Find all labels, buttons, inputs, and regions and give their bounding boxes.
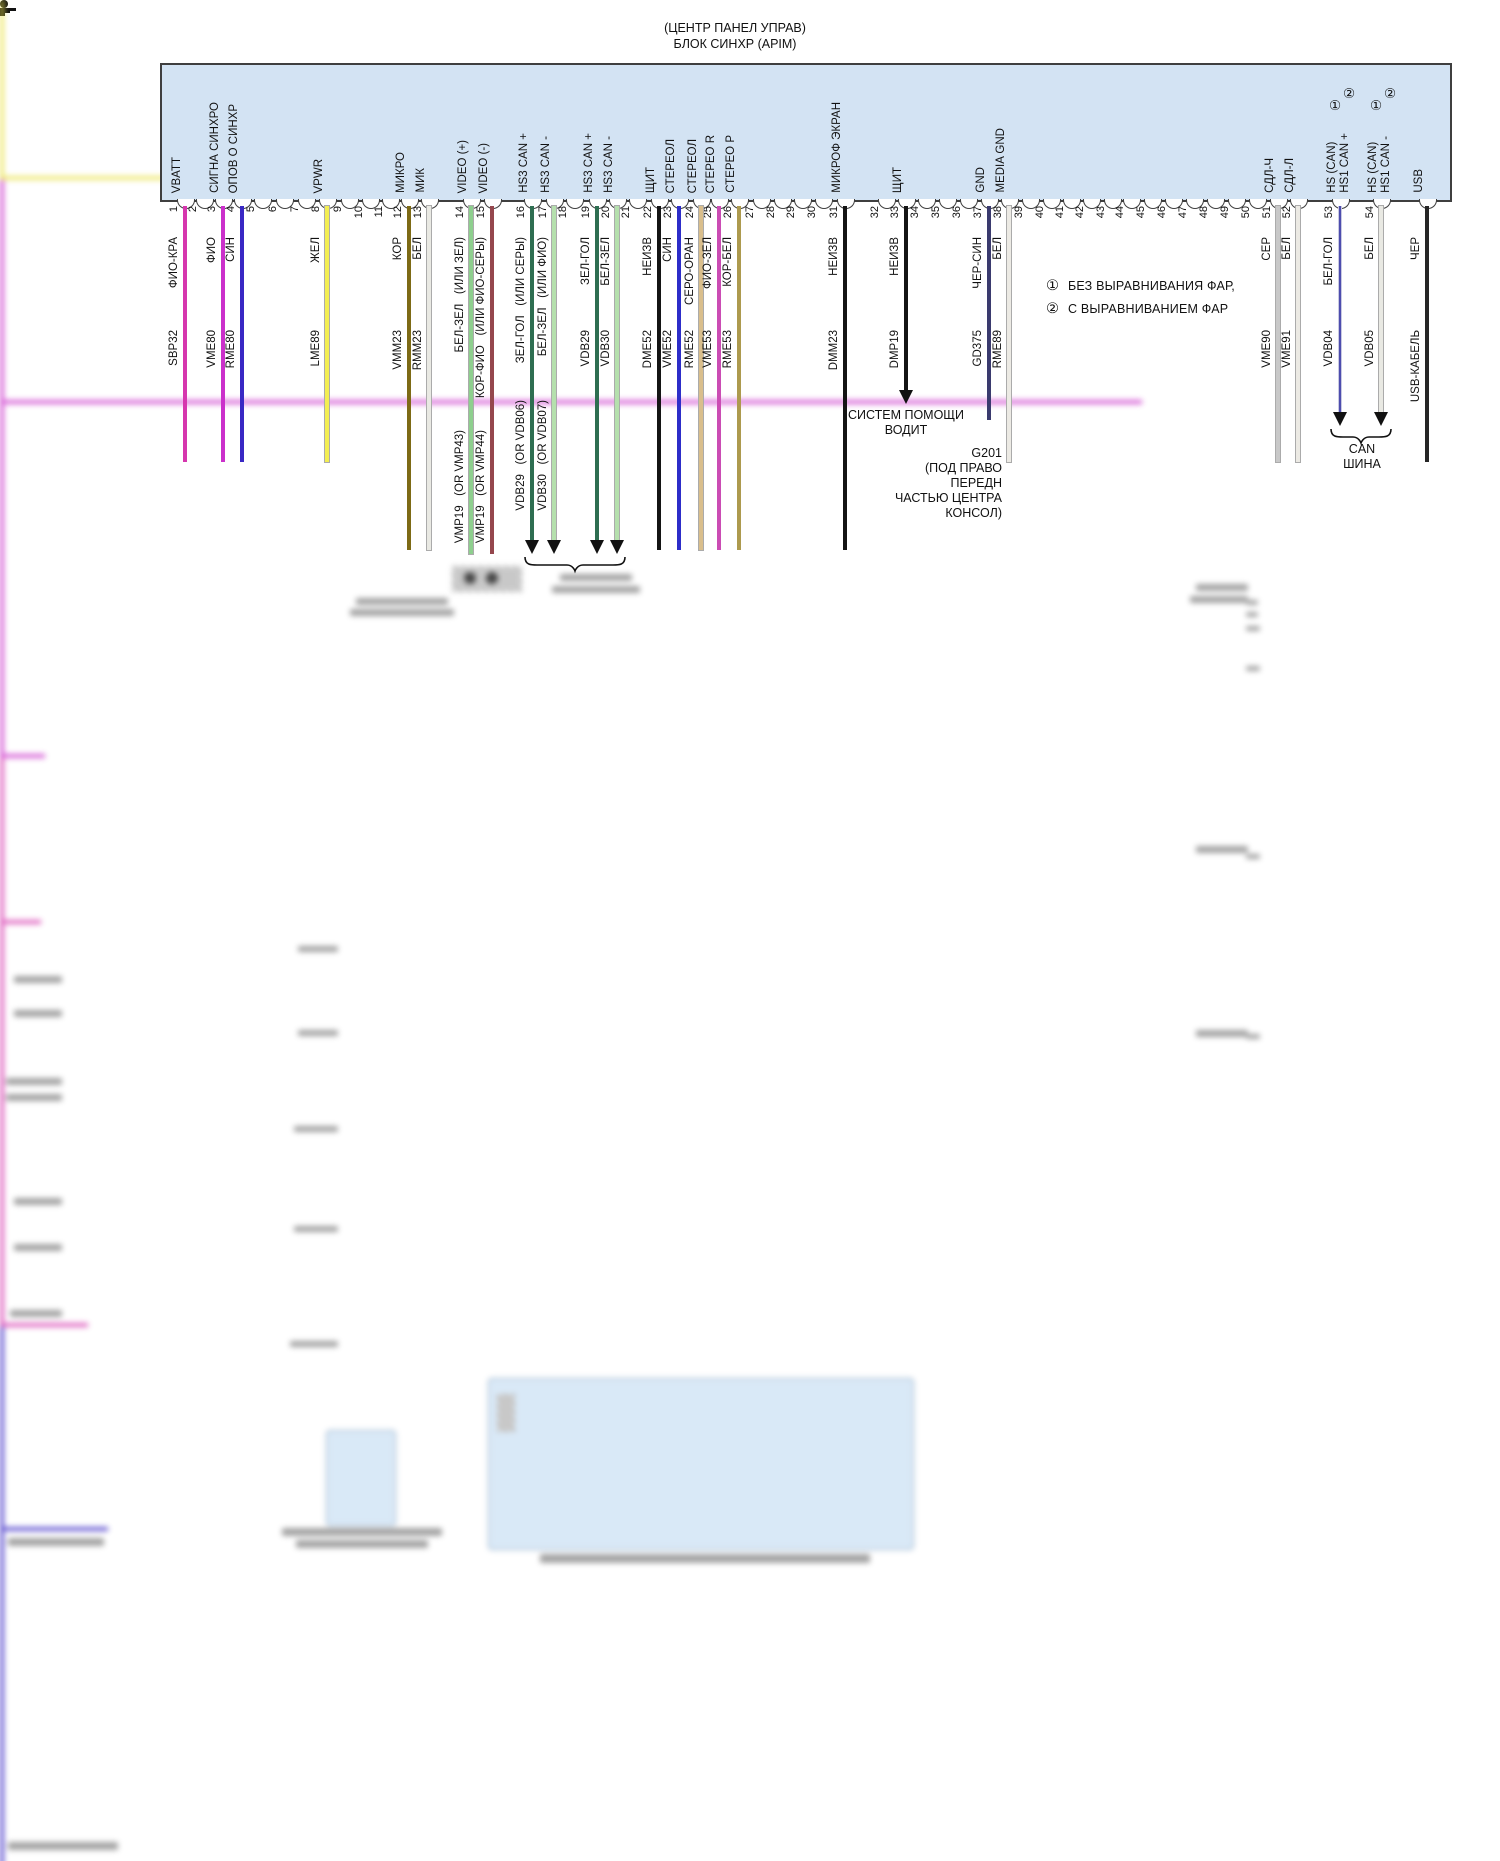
wire-segment	[407, 206, 411, 550]
pin-number: 15	[475, 206, 487, 218]
pin-number: 51	[1261, 206, 1273, 218]
circuit-code-label: LME89	[310, 330, 323, 366]
pin-number: 32	[869, 206, 881, 218]
wire-color-label: ФИО	[206, 237, 219, 263]
blurred-connector-hatch	[497, 1394, 515, 1432]
circuit-code-label: USB-КАБЕЛЬ	[1410, 330, 1423, 402]
blurred-label	[298, 946, 338, 952]
pin-number: 35	[930, 206, 942, 218]
wire-color-label: БЕЛ	[1281, 237, 1294, 260]
pin-number: 2	[187, 206, 199, 212]
blurred-wire	[0, 920, 41, 924]
wire-segment	[325, 206, 329, 462]
blurred-wire	[0, 1531, 4, 1861]
pin-function-label: VIDEO (-)	[478, 143, 491, 193]
wire-segment	[1425, 206, 1429, 462]
wire-color-label: ФИО-ЗЕЛ	[702, 237, 715, 289]
pin-number: 52	[1281, 206, 1293, 218]
blurred-label	[552, 586, 640, 593]
pin-number: 43	[1095, 206, 1107, 218]
wire-segment	[657, 206, 661, 550]
pin-function-label: ЩИТ	[645, 167, 658, 193]
pin-number: 50	[1240, 206, 1252, 218]
blurred-label	[1196, 584, 1248, 591]
pin-number: 20	[600, 206, 612, 218]
pin-function-label: HS3 CAN -	[540, 136, 553, 193]
wire-color-label: НЕИЗВ	[889, 237, 902, 276]
wire-color-label: БЕЛ-ЗЕЛ (ИЛИ ФИО)	[537, 237, 550, 356]
pin-function-label: HS3 CAN +	[583, 133, 596, 193]
wire-color-label: СИН	[662, 237, 675, 262]
pin-number: 23	[662, 206, 674, 218]
pin-number: 44	[1114, 206, 1126, 218]
blurred-wire	[0, 754, 45, 758]
circuit-code-label: VDB04	[1323, 330, 1336, 366]
blurred-component-box	[326, 1430, 396, 1526]
pin-number: 8	[310, 206, 322, 212]
wire-color-label: БЕЛ	[412, 237, 425, 260]
pin-number: 13	[412, 206, 424, 218]
blurred-label	[1246, 854, 1260, 859]
pin-number: 12	[392, 206, 404, 218]
pin-number: 9	[332, 206, 344, 212]
wire-arrow-end	[610, 540, 624, 554]
blurred-label	[296, 1540, 428, 1548]
wire-color-label: БЕЛ	[992, 237, 1005, 260]
blurred-splice-dot	[486, 572, 498, 584]
wire-color-label: ЧЁР-СИН	[972, 237, 985, 289]
pin-number: 48	[1198, 206, 1210, 218]
wire-color-label: СИН	[225, 237, 238, 262]
blurred-label	[350, 609, 454, 616]
wire-segment	[490, 206, 494, 554]
pin-number: 17	[537, 206, 549, 218]
blurred-label	[1246, 600, 1258, 605]
wire-color-label: ЧЁР	[1410, 237, 1423, 260]
pin-number: 18	[557, 206, 569, 218]
headlamp-variant-mark: ②	[1343, 87, 1355, 101]
pin-function-label: HS (CAN)HS1 CAN -	[1367, 136, 1393, 193]
headlamp-variant-mark: ①	[1329, 99, 1341, 113]
circuit-code-label: VME80	[206, 330, 219, 368]
wire-arrow-end	[1374, 412, 1388, 426]
wire-segment	[1276, 206, 1280, 462]
blurred-label	[1246, 666, 1260, 671]
legend-row: ②С ВЫРАВНИВАНИЕМ ФАР	[1046, 297, 1235, 320]
blurred-label	[356, 598, 448, 605]
blurred-label	[290, 1341, 338, 1347]
blurred-lower-section	[0, 0, 1500, 1861]
pin-function-label: СИГНА СИНХРО	[209, 102, 222, 193]
circuit-code-label: VMM23	[392, 330, 405, 370]
wiring-diagram: (ЦЕНТР ПАНЕЛ УПРАВ) БЛОК СИНХР (APIM) VB…	[0, 0, 1500, 1861]
blurred-wire	[0, 400, 1142, 404]
pin-function-label: СДЛ-Л	[1284, 158, 1297, 193]
circuit-code-label: VME90	[1261, 330, 1274, 368]
blurred-label	[1246, 1034, 1260, 1039]
wire-segment	[595, 206, 599, 540]
pin-function-label: МИК	[415, 168, 428, 193]
legend-variant-mark: ①	[1046, 278, 1059, 294]
pin-number: 24	[684, 206, 696, 218]
wire-segment	[677, 206, 681, 550]
blurred-label	[1246, 626, 1260, 631]
blurred-label	[1246, 612, 1258, 617]
circuit-code-label: RME53	[722, 330, 735, 368]
pin-number: 45	[1135, 206, 1147, 218]
wire-color-label: НЕИЗВ	[642, 237, 655, 276]
connector-title: (ЦЕНТР ПАНЕЛ УПРАВ) БЛОК СИНХР (APIM)	[535, 20, 935, 52]
pin-number: 40	[1034, 206, 1046, 218]
blurred-label	[6, 1078, 62, 1085]
blurred-label	[6, 1094, 62, 1101]
pin-number: 34	[909, 206, 921, 218]
circuit-code-label: VDB30	[600, 330, 613, 366]
can-bus-note: CANШИНА	[1321, 442, 1403, 472]
circuit-code-label: VME52	[662, 330, 675, 368]
wire-segment	[240, 206, 244, 462]
wire-segment	[615, 206, 619, 540]
circuit-code-label: DMM23	[828, 330, 841, 370]
wire-color-label: БЕЛ-ЗЕЛ	[600, 237, 613, 286]
circuit-code-label: GD375	[972, 330, 985, 366]
connector-block: VBATTСИГНА СИНХРООПОВ О СИНХРVPWRМИКРОМИ…	[160, 63, 1452, 202]
blurred-splice-dot	[464, 572, 476, 584]
blurred-label	[298, 1030, 338, 1036]
legend-row: ①БЕЗ ВЫРАВНИВАНИЯ ФАР,	[1046, 274, 1235, 297]
pin-function-label: HS3 CAN +	[518, 133, 531, 193]
pin-number: 41	[1054, 206, 1066, 218]
blurred-label	[1196, 846, 1248, 853]
wire-color-label: СЕР	[1261, 237, 1274, 261]
pin-number: 4	[225, 206, 237, 212]
pin-function-label: МИКРО	[395, 152, 408, 193]
pin-number: 27	[744, 206, 756, 218]
pin-number: 30	[806, 206, 818, 218]
pin-number: 47	[1177, 206, 1189, 218]
pin-number: 14	[454, 206, 466, 218]
pin-function-label: VPWR	[313, 159, 326, 194]
blurred-label	[8, 1538, 104, 1546]
hs3-can-group-brace	[524, 556, 626, 572]
headlamp-legend: ①БЕЗ ВЫРАВНИВАНИЯ ФАР,②С ВЫРАВНИВАНИЕМ Ф…	[1046, 274, 1235, 320]
pin-number: 7	[289, 206, 301, 212]
can-bus-group-brace	[1330, 428, 1392, 444]
circuit-code-label: DME52	[642, 330, 655, 368]
blurred-label	[1190, 596, 1248, 603]
blurred-label	[540, 1554, 870, 1563]
wire-color-label: ЖЁЛ	[310, 237, 323, 263]
pin-number: 53	[1323, 206, 1335, 218]
pin-function-label: USB	[1413, 169, 1426, 193]
pin-number: 29	[785, 206, 797, 218]
blurred-wire	[0, 0, 4, 176]
pin-function-label: СТЕРЕО R	[705, 135, 718, 193]
pin-number: 49	[1219, 206, 1231, 218]
pin-number: 16	[515, 206, 527, 218]
pin-number: 26	[722, 206, 734, 218]
pin-function-label: СДЛ-Ч	[1264, 158, 1277, 193]
headlamp-variant-mark: ②	[1384, 87, 1396, 101]
blurred-wire	[0, 1323, 88, 1327]
wire-color-label: КОР-ФИО (ИЛИ ФИО-СЕРЫ)	[475, 237, 488, 398]
wire-segment	[1007, 206, 1011, 462]
pin-function-label: СТЕРЕОЛ	[665, 139, 678, 193]
wire-color-label: КОР-БЕЛ	[722, 237, 735, 287]
pin-function-label: GND	[975, 167, 988, 193]
circuit-code-label: VME53	[702, 330, 715, 368]
pin-function-label: MEDIA GND	[995, 128, 1008, 193]
blurred-wire	[0, 404, 4, 754]
circuit-code-label: VDB29 (OR VDB06)	[515, 400, 528, 511]
pin-number: 31	[828, 206, 840, 218]
blurred-label	[14, 1198, 62, 1205]
pin-function-label: HS3 CAN -	[603, 136, 616, 193]
ground-location-note: G201(ПОД ПРАВОПЕРЕДНЧАСТЬЮ ЦЕНТРАКОНСОЛ)	[840, 446, 1002, 521]
wire-segment	[183, 206, 187, 462]
pin-number: 39	[1013, 206, 1025, 218]
pin-function-label: СТЕРЕОЛ	[687, 139, 700, 193]
pin-number: 1	[168, 206, 180, 212]
blurred-wire	[0, 180, 4, 400]
wire-arrow-end	[547, 540, 561, 554]
pin-number: 37	[972, 206, 984, 218]
wire-color-label: БЕЛ	[1364, 237, 1377, 260]
pin-function-label: ЩИТ	[892, 167, 905, 193]
pin-number: 46	[1156, 206, 1168, 218]
wire-color-label: ЗЕЛ-ГОЛ	[580, 237, 593, 285]
pin-number: 36	[951, 206, 963, 218]
wire-segment	[1338, 206, 1342, 412]
wire-segment	[552, 206, 556, 540]
circuit-code-label: VDB30 (OR VDB07)	[537, 400, 550, 511]
blurred-label	[14, 1244, 62, 1251]
pin-number: 11	[373, 206, 385, 217]
circuit-code-label: VME91	[1281, 330, 1294, 368]
connector-location: (ЦЕНТР ПАНЕЛ УПРАВ)	[535, 20, 935, 36]
blurred-label	[14, 1010, 62, 1017]
wire-arrow-end	[590, 540, 604, 554]
circuit-code-label: VMP19 (OR VMP44)	[475, 430, 488, 543]
blurred-label	[14, 976, 62, 983]
pin-number: 25	[702, 206, 714, 218]
headlamp-variant-mark: ①	[1370, 99, 1382, 113]
wire-segment	[1379, 206, 1383, 412]
pin-number: 3	[206, 206, 218, 212]
pin-number: 21	[620, 206, 632, 218]
circuit-code-label: RME52	[684, 330, 697, 368]
blurred-label	[294, 1226, 338, 1232]
circuit-code-label: SBP32	[168, 330, 181, 366]
pin-number: 6	[267, 206, 279, 212]
blurred-label	[560, 574, 632, 581]
pin-number: 38	[992, 206, 1004, 218]
circuit-code-label: VDB05	[1364, 330, 1377, 366]
wire-segment	[737, 206, 741, 550]
wire-arrow-end	[525, 540, 539, 554]
pin-number: 33	[889, 206, 901, 218]
pin-number: 22	[642, 206, 654, 218]
pin-number: 10	[353, 206, 365, 218]
wire-color-label: ФИО-КРА	[168, 237, 181, 288]
legend-variant-mark: ②	[1046, 301, 1059, 317]
pin-function-label: СТЕРЕО Р	[725, 135, 738, 193]
blurred-wire	[0, 1527, 108, 1531]
pin-number: 19	[580, 206, 592, 218]
wire-color-label: СЕРО-ОРАН	[684, 237, 697, 305]
blurred-wire	[0, 758, 4, 920]
wire-segment	[904, 206, 908, 390]
wire-color-label: ЗЕЛ-ГОЛ (ИЛИ СЕРЫ)	[515, 237, 528, 363]
pin-function-label: HS (CAN)HS1 CAN +	[1326, 133, 1352, 193]
legend-text: БЕЗ ВЫРАВНИВАНИЯ ФАР,	[1068, 279, 1235, 293]
blurred-label	[1196, 1030, 1248, 1037]
circuit-code-label: RME89	[992, 330, 1005, 368]
wire-segment	[717, 206, 721, 550]
pin-number: 28	[765, 206, 777, 218]
blurred-wire	[0, 924, 4, 1323]
blurred-label	[282, 1528, 442, 1536]
pin-number: 5	[245, 206, 257, 212]
blurred-switch-assembly-box	[488, 1378, 914, 1550]
wire-color-label: КОР	[392, 237, 405, 260]
wire-arrow-end	[899, 390, 913, 404]
connector-name: БЛОК СИНХР (APIM)	[535, 36, 935, 52]
pin-function-label: VBATT	[171, 157, 184, 193]
wire-segment	[987, 206, 991, 420]
wire-segment	[427, 206, 431, 550]
pin-number: 54	[1364, 206, 1376, 218]
circuit-code-label: VMP19 (OR VMP43)	[454, 430, 467, 543]
wire-color-label: БЕЛ-ГОЛ	[1323, 237, 1336, 286]
pin-number: 42	[1074, 206, 1086, 218]
circuit-code-label: RMM23	[412, 330, 425, 370]
wire-segment	[469, 206, 473, 554]
blurred-label	[294, 1126, 338, 1132]
circuit-code-label: DMP19	[889, 330, 902, 368]
legend-text: С ВЫРАВНИВАНИЕМ ФАР	[1068, 302, 1228, 316]
wire-segment	[530, 206, 534, 540]
blurred-label	[10, 1310, 62, 1317]
wire-segment	[1296, 206, 1300, 462]
pin-function-label: ОПОВ О СИНХР	[228, 104, 241, 193]
blurred-label	[8, 1842, 118, 1850]
wire-color-label: БЕЛ-ЗЕЛ (ИЛИ ЗЕЛ)	[454, 237, 467, 352]
driver-assist-note: СИСТЕМ ПОМОЩИВОДИТ	[826, 408, 986, 438]
pin-function-label: VIDEO (+)	[457, 140, 470, 193]
circuit-code-label: RME80	[225, 330, 238, 368]
blurred-wire	[0, 1327, 4, 1527]
wire-color-label: НЕИЗВ	[828, 237, 841, 276]
pin-function-label: МИКРОФ ЭКРАН	[831, 102, 844, 193]
wire-arrow-end	[1333, 412, 1347, 426]
circuit-code-label: VDB29	[580, 330, 593, 366]
